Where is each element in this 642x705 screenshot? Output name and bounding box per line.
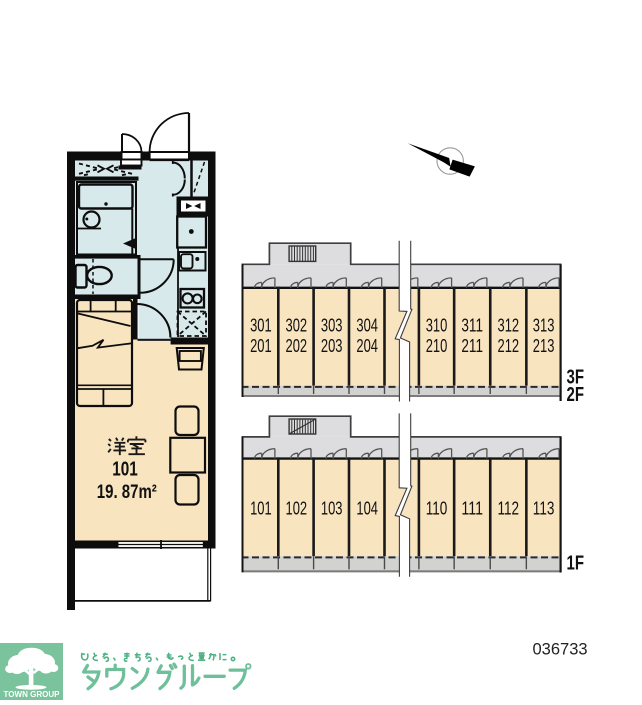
svg-text:202: 202 xyxy=(286,336,308,356)
svg-text:313: 313 xyxy=(533,316,555,336)
svg-text:211: 211 xyxy=(461,336,483,356)
svg-text:210: 210 xyxy=(426,336,448,356)
svg-text:TOWN GROUP: TOWN GROUP xyxy=(4,689,60,699)
svg-text:204: 204 xyxy=(356,336,378,356)
svg-text:303: 303 xyxy=(321,316,343,336)
svg-text:102: 102 xyxy=(286,499,308,519)
svg-text:301: 301 xyxy=(250,316,272,336)
svg-text:111: 111 xyxy=(461,499,483,519)
svg-text:104: 104 xyxy=(356,499,378,519)
svg-text:310: 310 xyxy=(426,316,448,336)
svg-text:036733: 036733 xyxy=(533,640,588,658)
svg-text:312: 312 xyxy=(498,316,520,336)
svg-text:103: 103 xyxy=(321,499,343,519)
svg-text:113: 113 xyxy=(533,499,555,519)
svg-text:302: 302 xyxy=(286,316,308,336)
svg-text:212: 212 xyxy=(498,336,520,356)
svg-text:311: 311 xyxy=(461,316,483,336)
svg-text:101: 101 xyxy=(250,499,272,519)
svg-text:2F: 2F xyxy=(567,384,585,406)
svg-text:110: 110 xyxy=(426,499,448,519)
svg-text:19. 87m²: 19. 87m² xyxy=(97,482,157,503)
svg-text:112: 112 xyxy=(498,499,520,519)
svg-text:304: 304 xyxy=(356,316,378,336)
svg-text:201: 201 xyxy=(250,336,272,356)
svg-text:101: 101 xyxy=(112,459,138,481)
svg-text:1F: 1F xyxy=(567,553,585,575)
svg-text:213: 213 xyxy=(533,336,555,356)
svg-text:203: 203 xyxy=(321,336,343,356)
